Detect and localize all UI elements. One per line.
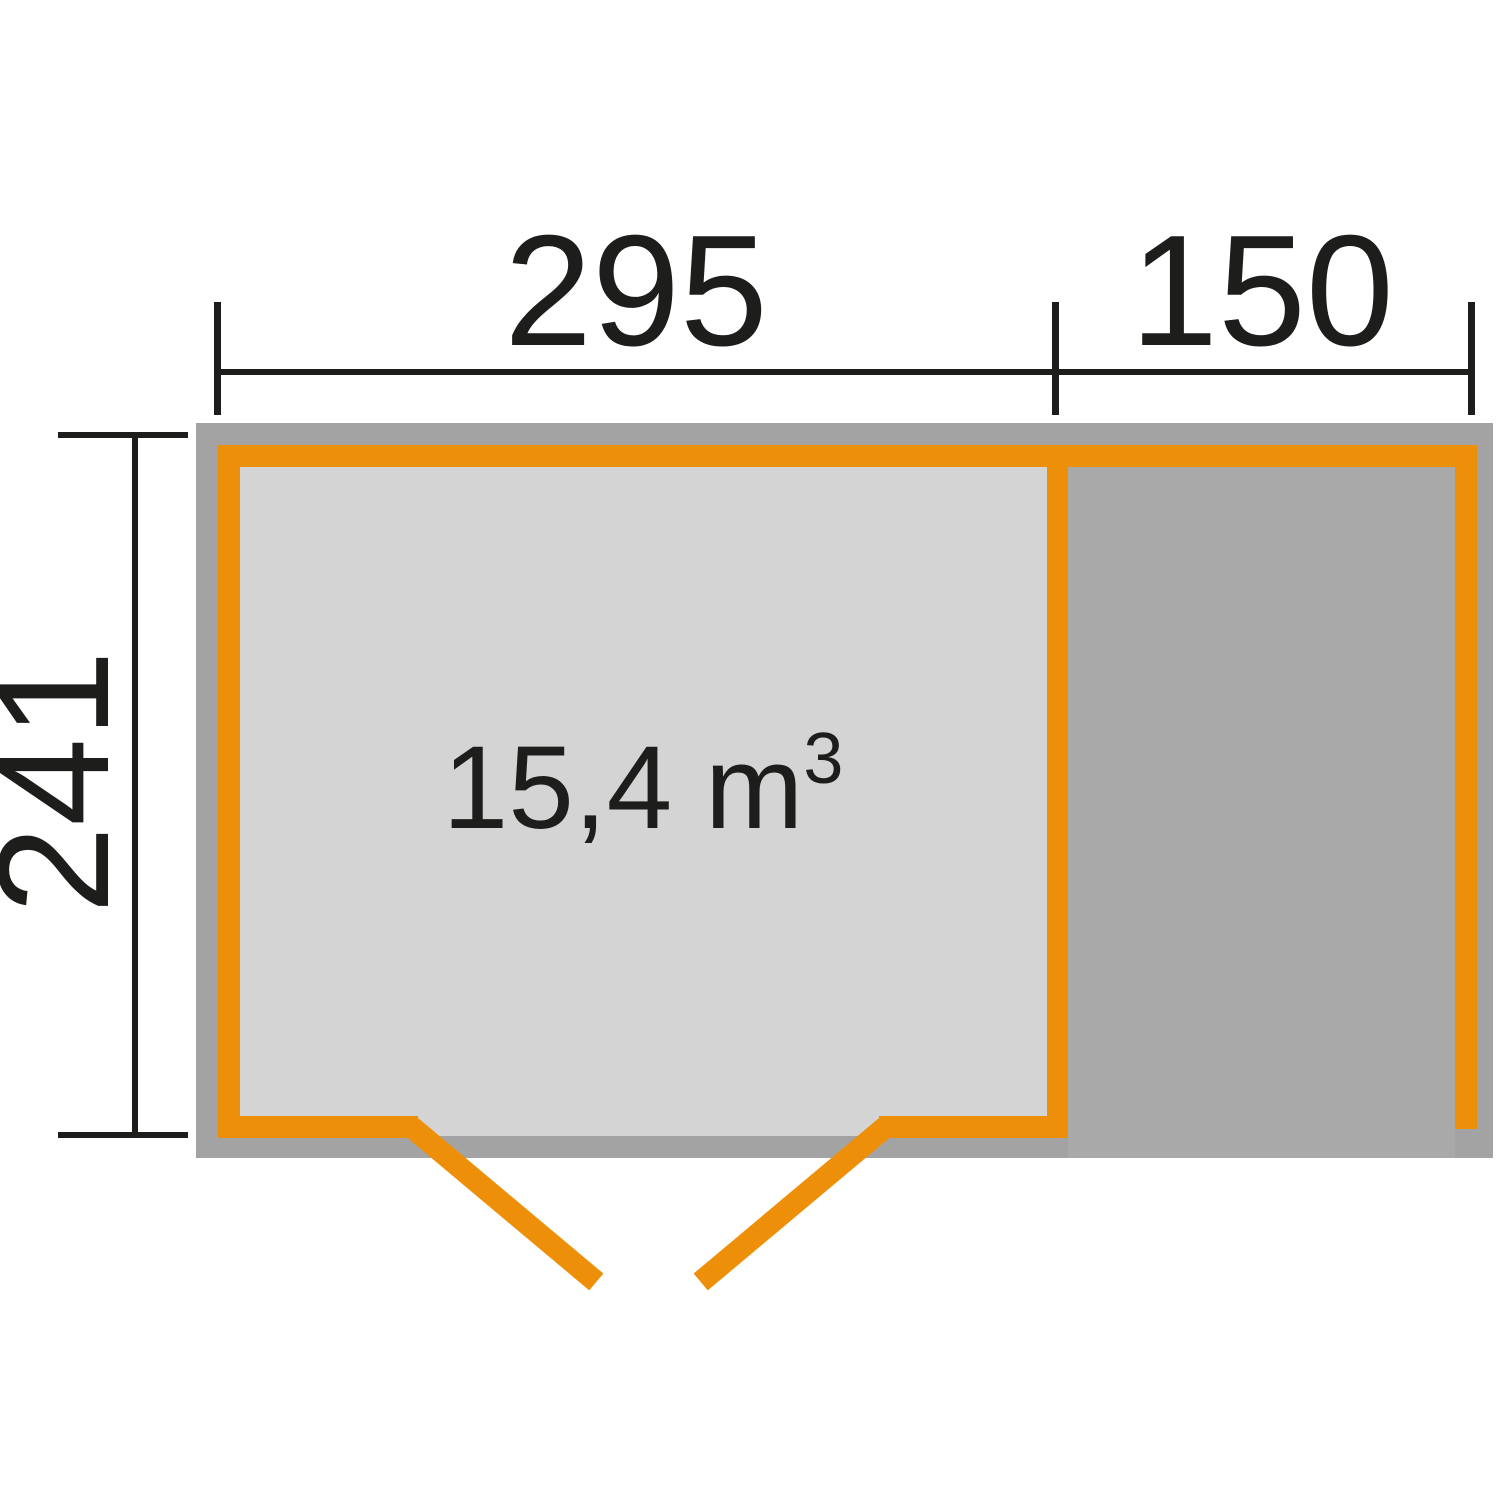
room-volume-exponent: 3	[803, 719, 843, 799]
dimension-tick-left-bottom	[58, 1132, 188, 1138]
floor-plan-diagram: 15,4 m3 295 150 241	[0, 0, 1500, 1500]
wall-annex-right	[1455, 445, 1477, 1129]
room-volume-value: 15,4 m	[443, 722, 804, 854]
wall-bottom-left-segment	[218, 1116, 418, 1138]
wall-bottom-right-segment	[879, 1116, 1068, 1138]
room-volume-label: 15,4 m3	[443, 729, 844, 847]
door-opening-floor	[418, 1116, 879, 1136]
dimension-label-150: 150	[962, 212, 1500, 370]
annex-area	[1068, 467, 1455, 1158]
dimension-label-241: 241	[0, 650, 133, 914]
dimension-tick-top-left	[214, 302, 221, 415]
dimension-tick-left-top	[58, 432, 188, 438]
wall-divider	[1047, 445, 1068, 1138]
dimension-label-295: 295	[336, 212, 936, 370]
wall-top	[218, 445, 1477, 467]
wall-left	[218, 445, 240, 1138]
